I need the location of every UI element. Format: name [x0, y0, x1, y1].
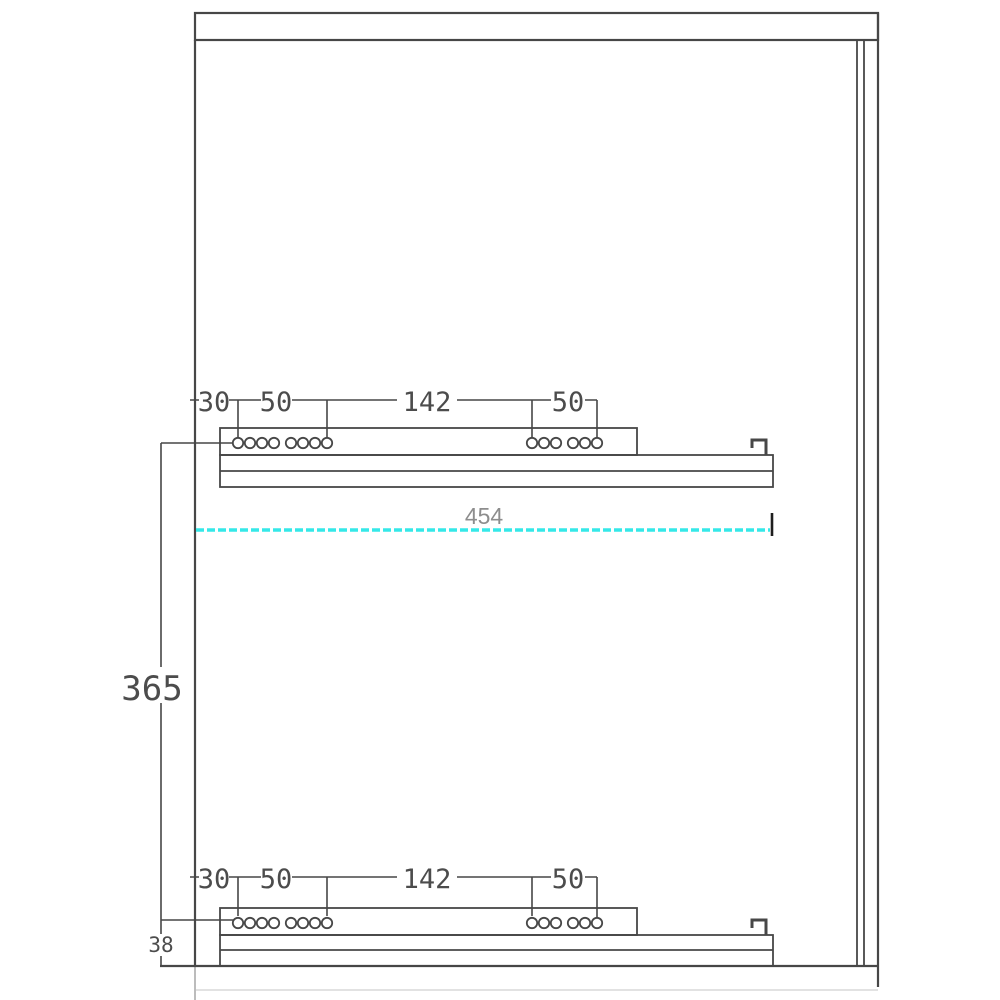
cabinet-panel — [160, 13, 878, 1000]
mounting-hole — [551, 918, 561, 928]
dimension-chain-bottom: 30 50 142 50 — [190, 864, 597, 917]
mounting-hole — [257, 918, 267, 928]
drawing-canvas: 30 50 142 50 454 365 38 30 50 142 50 — [0, 0, 1000, 1000]
mounting-hole — [269, 438, 279, 448]
mounting-hole — [257, 438, 267, 448]
dimension-chain-top: 30 50 142 50 — [190, 387, 597, 438]
dimension-width-454: 454 — [196, 503, 772, 536]
mounting-hole — [568, 438, 578, 448]
mounting-hole — [286, 918, 296, 928]
mounting-hole — [580, 918, 590, 928]
mounting-hole — [539, 918, 549, 928]
bottom-dim-label-50-front: 50 — [260, 864, 293, 895]
mounting-hole — [245, 918, 255, 928]
mounting-hole — [592, 438, 602, 448]
mounting-hole — [310, 438, 320, 448]
mounting-hole — [580, 438, 590, 448]
spacing-dim-label: 365 — [121, 669, 182, 709]
mounting-hole — [527, 438, 537, 448]
mounting-hole — [233, 438, 243, 448]
bottom-dim-label-142: 142 — [403, 864, 452, 895]
cad-drawing: 30 50 142 50 454 365 38 30 50 142 50 — [0, 0, 1000, 1000]
width-dim-label: 454 — [465, 503, 504, 529]
mounting-hole — [298, 918, 308, 928]
top-dim-label-30: 30 — [198, 387, 231, 418]
mounting-hole — [298, 438, 308, 448]
mounting-hole — [527, 918, 537, 928]
mounting-hole — [539, 438, 549, 448]
dimension-offset-38: 38 — [148, 920, 173, 966]
top-dim-label-142: 142 — [403, 387, 452, 418]
drawer-slide-top — [161, 428, 773, 487]
panel-top-edge — [195, 13, 878, 40]
mounting-hole — [322, 918, 332, 928]
mounting-holes-bottom — [233, 918, 602, 928]
mounting-hole — [551, 438, 561, 448]
dimension-spacing-365: 365 — [121, 443, 182, 920]
mounting-hole — [269, 918, 279, 928]
bottom-dim-label-50-rear: 50 — [552, 864, 585, 895]
mounting-hole — [286, 438, 296, 448]
offset-dim-label: 38 — [148, 933, 173, 957]
mounting-hole — [592, 918, 602, 928]
bottom-dim-label-30: 30 — [198, 864, 231, 895]
mounting-hole — [322, 438, 332, 448]
mounting-holes-top — [233, 438, 602, 448]
mounting-hole — [568, 918, 578, 928]
mounting-hole — [233, 918, 243, 928]
drawer-slide-bottom — [161, 908, 773, 966]
top-dim-label-50-rear: 50 — [552, 387, 585, 418]
slide-hook-top — [752, 440, 766, 455]
slide-hook-bottom — [752, 920, 766, 935]
mounting-hole — [310, 918, 320, 928]
mounting-hole — [245, 438, 255, 448]
top-dim-label-50-front: 50 — [260, 387, 293, 418]
